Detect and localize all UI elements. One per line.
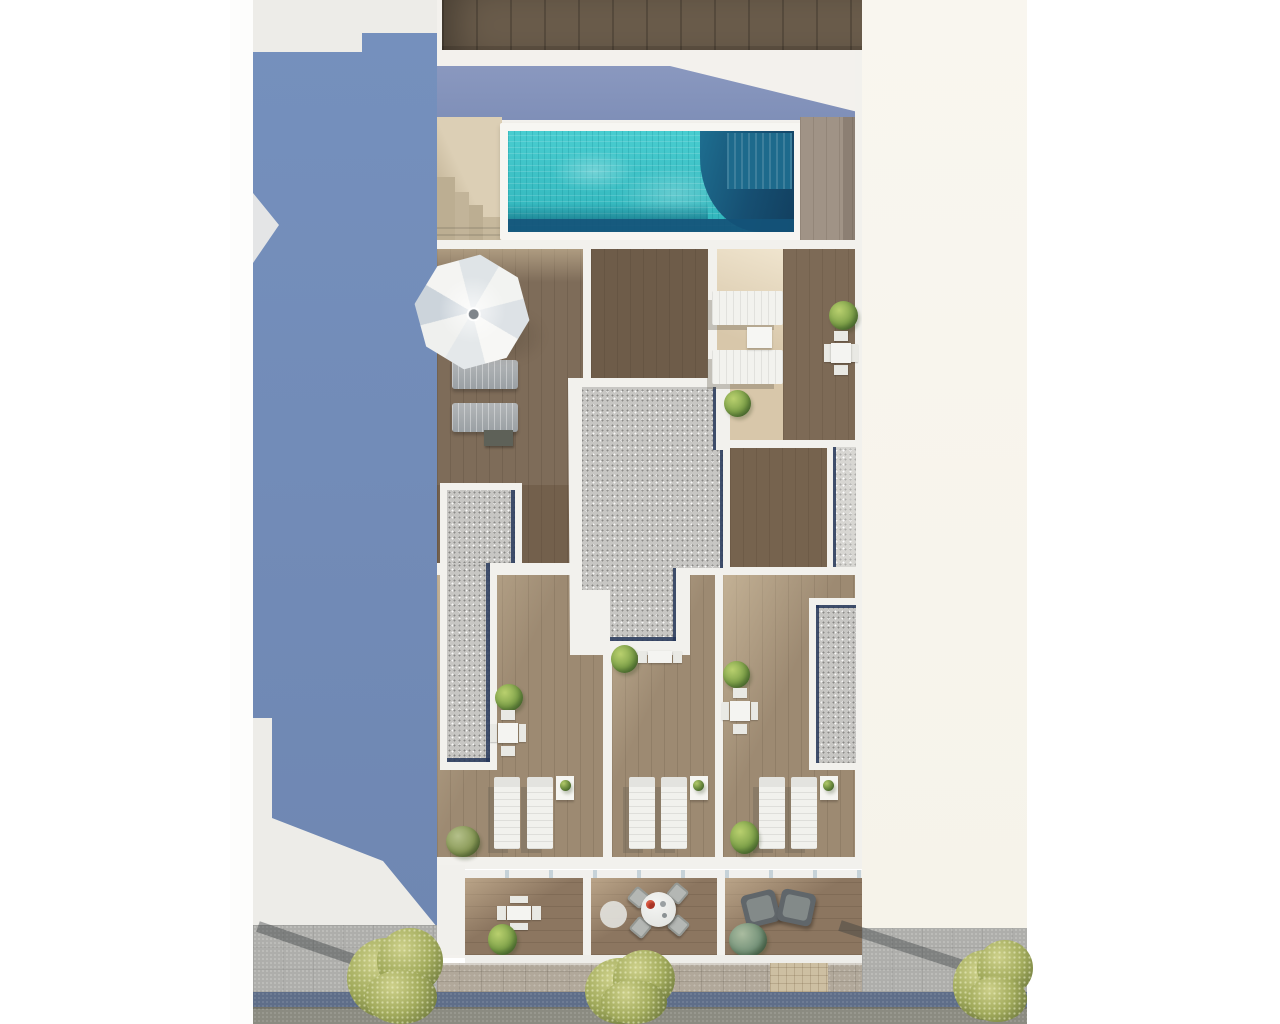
potted-plant	[611, 645, 638, 673]
side-table	[747, 327, 772, 348]
round-dining-set	[629, 882, 687, 938]
potted-plant	[730, 821, 759, 854]
chair	[497, 906, 506, 920]
parapet-wall	[437, 857, 862, 869]
chair	[510, 896, 528, 903]
stair-step-shadow	[455, 192, 469, 240]
gravel-shadow-line	[816, 605, 819, 763]
potted-plant	[724, 390, 751, 417]
parapet-wall	[437, 240, 862, 249]
chair	[490, 724, 497, 742]
table	[730, 701, 750, 721]
gravel-strip-right-b	[816, 605, 856, 763]
gravel-strip-left-top	[447, 490, 515, 563]
scene-canvas	[0, 0, 1280, 1024]
white-sun-lounger	[494, 777, 520, 849]
street-tree	[585, 950, 677, 1024]
pool-staircase	[437, 117, 502, 240]
tableware	[662, 913, 667, 918]
chair	[751, 702, 758, 720]
bistro-table-set	[824, 331, 858, 375]
street-tree	[347, 928, 445, 1024]
small-pot-plant	[693, 780, 704, 791]
bistro-table-set	[722, 688, 758, 734]
gravel-shadow-line	[610, 637, 676, 641]
gravel-shadow-line	[720, 450, 723, 568]
stair-tread-line	[437, 227, 502, 229]
gravel-strip-right-a	[833, 447, 856, 567]
tile-patch	[770, 963, 828, 992]
dining-table-set	[638, 643, 682, 671]
chair	[532, 906, 541, 920]
street-tree	[953, 940, 1035, 1024]
stair-step-shadow	[437, 177, 455, 240]
chair	[519, 724, 526, 742]
swimming-pool-water	[508, 131, 794, 232]
white-sun-lounger	[712, 291, 783, 325]
stair-tread-line	[437, 234, 502, 236]
small-pot-plant	[823, 780, 834, 791]
chair	[824, 344, 831, 362]
gravel-shadow-line	[833, 447, 836, 567]
round-table	[641, 892, 676, 927]
potted-plant	[446, 826, 480, 857]
chair	[638, 651, 647, 662]
small-pot-plant	[560, 780, 571, 791]
chair	[501, 746, 515, 756]
white-sun-lounger	[629, 777, 655, 849]
tree-canopy	[967, 976, 1027, 1022]
chair	[851, 344, 858, 362]
gravel-strip-left-bottom	[447, 563, 490, 762]
gravel-shadow-line	[511, 490, 515, 563]
right-neighbour-roof	[862, 0, 1027, 928]
chair	[834, 331, 848, 341]
white-sun-lounger	[759, 777, 785, 849]
balcony-divider	[717, 878, 725, 955]
gravel-shadow-line	[673, 568, 676, 641]
tree-canopy	[365, 970, 437, 1024]
chair	[673, 651, 682, 662]
potted-plant	[729, 923, 767, 957]
table	[831, 343, 850, 362]
bistro-table-set	[490, 710, 526, 756]
partition-wall	[583, 249, 591, 380]
table	[648, 651, 673, 663]
chair	[733, 724, 747, 734]
chair	[733, 688, 747, 698]
dark-side-table	[484, 430, 513, 446]
pool-side-deck-shade	[843, 117, 855, 240]
white-sun-lounger	[712, 350, 783, 384]
red-bowl	[646, 900, 655, 909]
armchair-seat	[782, 894, 811, 922]
pool-steps	[727, 133, 792, 189]
armchair-seat	[746, 894, 776, 922]
table	[507, 906, 532, 921]
chair	[834, 365, 848, 375]
potted-plant	[723, 661, 750, 688]
pool-mid-depth-shade	[508, 203, 708, 219]
potted-plant	[488, 924, 517, 955]
chair	[722, 702, 729, 720]
tree-canopy	[601, 980, 667, 1024]
white-sun-lounger	[791, 777, 817, 849]
gray-sun-lounger	[452, 403, 518, 432]
potted-plant	[829, 301, 858, 330]
center-dark-deck	[591, 249, 708, 380]
armchair	[776, 888, 817, 928]
round-rug	[600, 901, 627, 928]
building-shadow-left	[253, 33, 437, 927]
white-sun-lounger	[661, 777, 687, 849]
gravel-shadow-line	[447, 758, 490, 762]
page-left-margin	[230, 0, 253, 1024]
potted-plant	[495, 684, 523, 711]
table	[498, 723, 518, 743]
balcony-divider	[583, 878, 591, 955]
pool-bottom-edge	[508, 219, 794, 232]
chair	[501, 710, 515, 720]
central-gravel-roof	[560, 378, 735, 663]
top-neighbour-wood-roof	[442, 0, 862, 50]
gravel-shadow-line	[713, 387, 716, 450]
white-sun-lounger	[527, 777, 553, 849]
gravel-shadow-line	[816, 605, 856, 608]
tableware	[660, 901, 666, 907]
